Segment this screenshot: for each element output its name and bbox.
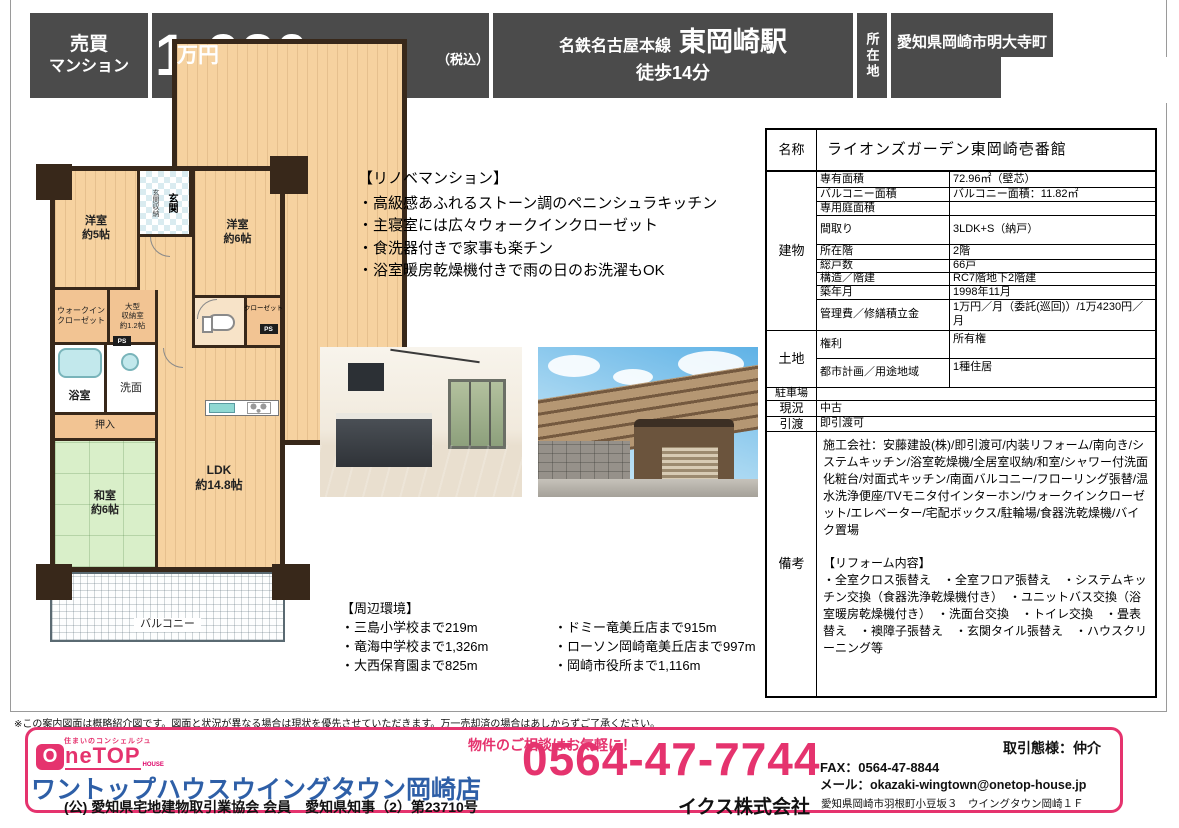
remarks-reform-title: 【リフォーム内容】 xyxy=(823,555,1149,572)
renovation-notes: 【リノベマンション】 ・高級感あふれるストーン調のペニンシュラキッチン ・主寝室… xyxy=(358,168,758,283)
pillar-top-right xyxy=(270,156,308,194)
row-label: 間取り xyxy=(817,216,950,244)
table-row-handover: 引渡 即引渡可 xyxy=(767,417,1155,432)
row-value xyxy=(817,388,1155,400)
onetop-logo: O neTOP HOUSE xyxy=(36,744,164,770)
large-storage-label: 大型 収納室 約1.2帖 xyxy=(120,302,145,330)
row-label: 権利 xyxy=(817,331,950,358)
location-label: 所在地 xyxy=(863,32,882,80)
surroundings-item: ・大西保育園まで825m xyxy=(341,657,526,676)
row-label: バルコニー面積 xyxy=(817,188,950,201)
ps-duct-label-left: PS xyxy=(113,336,131,346)
station-name: 東岡崎駅 xyxy=(679,26,787,60)
bath-label: 浴室 xyxy=(69,390,91,404)
floor-plan-unit: 洋室 約5帖 玄関収納 玄関 洋室 約6帖 ウォークイン クローゼット 大型 収… xyxy=(50,166,285,572)
rail-line-name: 名鉄名古屋本線 xyxy=(559,37,671,57)
retaining-wall xyxy=(538,441,630,481)
row-label: 所在階 xyxy=(817,245,950,259)
license-info: (公) 愛知県宅地建物取引業協会 会員 愛知県知事（2）第23710号 xyxy=(64,797,478,817)
room-bath: 浴室 xyxy=(55,345,107,415)
walk-time: 徒歩14分 xyxy=(636,62,710,85)
email-address: メール：okazaki-wingtown@onetop-house.jp xyxy=(820,774,1086,793)
table-row: 間取り 3LDK+S（納戸） xyxy=(817,216,1155,245)
row-value: 72.96㎡（壁芯） xyxy=(950,172,1155,188)
surroundings-title: 【周辺環境】 xyxy=(341,600,761,619)
renovation-item: ・主寝室には広々ウォークインクローゼット xyxy=(358,215,758,238)
cloud xyxy=(548,355,600,377)
logo-o-mark: O xyxy=(36,744,64,770)
agency-footer: 住まいのコンシェルジュ O neTOP HOUSE ワントップハウスウイングタウ… xyxy=(25,727,1123,813)
pillar-top-left xyxy=(36,164,72,200)
row-value: 1種住居 xyxy=(950,359,1155,376)
balcony: バルコニー xyxy=(50,572,285,642)
door-arc-entrance xyxy=(150,237,170,257)
room-walkin-closet: ウォークイン クローゼット xyxy=(55,290,110,345)
table-row: 専有面積 72.96㎡（壁芯） xyxy=(817,172,1155,188)
table-row: 都市計画／用途地域 1種住居 xyxy=(817,359,1155,387)
table-row-parking: 駐車場 xyxy=(767,388,1155,401)
row-label: 現況 xyxy=(767,401,817,416)
table-row: 築年月 1998年11月 xyxy=(817,286,1155,300)
property-address: 愛知県岡崎市明大寺町 xyxy=(897,31,1047,52)
interior-window xyxy=(448,379,506,449)
row-label: 駐車場 xyxy=(767,388,817,400)
spec-building-label: 建物 xyxy=(767,172,817,330)
road xyxy=(538,479,758,497)
address-redaction-box xyxy=(1001,57,1173,103)
walkin-closet-label: ウォークイン クローゼット xyxy=(57,306,105,326)
row-label: 引渡 xyxy=(767,417,817,431)
room-western-6: 洋室 約6帖 xyxy=(192,171,280,298)
table-row: バルコニー面積 バルコニー面積：11.82㎡ xyxy=(817,188,1155,202)
renovation-item: ・高級感あふれるストーン調のペニンシュラキッチン xyxy=(358,193,758,216)
room-ldk: LDK 約14.8帖 xyxy=(158,348,280,567)
logo-house-text: HOUSE xyxy=(143,762,164,768)
company-name: イクス株式会社 xyxy=(678,792,810,819)
japanese-room-label: 和室 約6帖 xyxy=(91,490,119,518)
phone-number: 0564-47-7744 xyxy=(522,736,820,782)
balcony-label: バルコニー xyxy=(134,618,201,632)
surroundings-item: ・ドミー竜美丘店まで915m xyxy=(554,619,756,638)
listing-type-line2: マンション xyxy=(49,57,129,78)
room-japanese: 和室 約6帖 xyxy=(55,441,158,567)
interior-photo xyxy=(320,347,522,497)
station-banner: 名鉄名古屋本線 東岡崎駅 徒歩14分 xyxy=(493,13,853,98)
surroundings-item: ・竜海中学校まで1,326m xyxy=(341,638,526,657)
row-value: バルコニー面積：11.82㎡ xyxy=(950,187,1155,203)
remarks-reform: ・全室クロス張替え ・全室フロア張替え ・システムキッチン交換（食器洗浄乾燥機付… xyxy=(823,572,1149,657)
room-western-6-label: 洋室 約6帖 xyxy=(223,219,251,247)
ldk-label: LDK 約14.8帖 xyxy=(195,463,242,493)
row-label: 管理費／修繕積立金 xyxy=(817,300,950,330)
surroundings-item: ・三島小学校まで219m xyxy=(341,619,526,638)
row-label: 構造／階建 xyxy=(817,273,950,285)
row-label: 総戸数 xyxy=(817,260,950,272)
table-row: 管理費／修繕積立金 1万円／月（委託(巡回)）/1万4230円／月 xyxy=(817,300,1155,330)
room-closet: クローゼット PS xyxy=(247,298,280,348)
kitchen-island xyxy=(336,413,432,467)
floor-plan: 洋室 約5帖 玄関収納 玄関 洋室 約6帖 ウォークイン クローゼット 大型 収… xyxy=(30,140,330,688)
exterior-photo xyxy=(538,347,758,497)
room-washroom: 洗面 xyxy=(107,345,158,415)
renovation-item: ・浴室暖房乾燥機付きで雨の日のお洗濯もOK xyxy=(358,260,758,283)
price-tax-note: （税込） xyxy=(437,53,489,68)
spec-name-label: 名称 xyxy=(767,130,817,170)
table-row-status: 現況 中古 xyxy=(767,401,1155,417)
renovation-item: ・食洗器付きで家事も楽チン xyxy=(358,238,758,261)
closet-label: クローゼット xyxy=(244,302,283,312)
room-western-5-label: 洋室 約5帖 xyxy=(82,215,110,243)
property-name: ライオンズガーデン東岡崎壱番館 xyxy=(817,130,1155,170)
remarks-features: 施工会社：安藤建設(株)/即引渡可/内装リフォーム/南向き/システムキッチン/浴… xyxy=(823,437,1149,539)
office-address: 愛知県岡崎市羽根町小豆坂３ ウイングタウン岡崎１Ｆ xyxy=(821,796,1084,811)
row-value: 所有権 xyxy=(950,331,1155,348)
washroom-label: 洗面 xyxy=(120,382,142,396)
row-value: 1万円／月（委託(巡回)）/1万4230円／月 xyxy=(950,300,1155,330)
row-value: 即引渡可 xyxy=(817,417,1155,431)
range-hood xyxy=(348,363,384,391)
row-label: 都市計画／用途地域 xyxy=(817,359,950,387)
room-entrance: 玄関収納 玄関 xyxy=(140,171,192,237)
price-banner: 1,980 万円 （税込） xyxy=(152,13,489,98)
table-row: 専用庭面積 xyxy=(817,202,1155,216)
location-label-cell: 所在地 xyxy=(857,13,887,98)
entrance-stairs xyxy=(662,447,718,481)
room-toilet xyxy=(192,298,247,348)
kitchen-counter-icon xyxy=(205,400,279,416)
table-row-remarks: 備考 施工会社：安藤建設(株)/即引渡可/内装リフォーム/南向き/システムキッチ… xyxy=(767,432,1155,696)
row-value: 1998年11月 xyxy=(950,285,1155,301)
oshiire-label: 押入 xyxy=(95,420,115,433)
renovation-title: 【リノベマンション】 xyxy=(358,168,758,191)
table-row: 権利 所有権 xyxy=(817,331,1155,359)
building-entrance xyxy=(634,419,734,481)
bathtub-icon xyxy=(58,348,102,378)
remarks-label: 備考 xyxy=(767,432,817,696)
entrance-storage-label: 玄関収納 xyxy=(150,189,160,217)
pillar-bottom-right xyxy=(272,564,310,600)
row-label: 専用庭面積 xyxy=(817,202,950,215)
track-light xyxy=(390,349,479,364)
pillar-bottom-left xyxy=(36,564,72,600)
row-label: 築年月 xyxy=(817,286,950,299)
surroundings-item: ・ローソン岡崎竜美丘店まで997m xyxy=(554,638,756,657)
ps-duct-label-right: PS xyxy=(260,324,278,334)
property-spec-table: 名称 ライオンズガーデン東岡崎壱番館 建物 専有面積 72.96㎡（壁芯） バル… xyxy=(765,128,1157,698)
sink-icon xyxy=(121,353,139,371)
spec-land-label: 土地 xyxy=(767,331,817,387)
room-oshiire: 押入 xyxy=(55,415,158,441)
row-label: 専有面積 xyxy=(817,172,950,187)
surroundings: 【周辺環境】 ・三島小学校まで219m ・竜海中学校まで1,326m ・大西保育… xyxy=(341,600,761,675)
listing-type-badge: 売買 マンション xyxy=(30,13,148,98)
row-value xyxy=(950,208,1155,210)
entrance-label: 玄関 xyxy=(164,193,179,213)
row-value: 中古 xyxy=(817,401,1155,416)
listing-type-line1: 売買 xyxy=(70,34,108,57)
logo-netop-text: neTOP xyxy=(65,745,141,770)
row-value: 3LDK+S（納戸） xyxy=(950,222,1155,238)
deal-type: 取引態様：仲介 xyxy=(1003,738,1101,758)
surroundings-item: ・岡崎市役所まで1,116m xyxy=(554,657,756,676)
flyer-page: 売買 マンション 1,980 万円 （税込） 名鉄名古屋本線 東岡崎駅 徒歩14… xyxy=(0,0,1179,828)
